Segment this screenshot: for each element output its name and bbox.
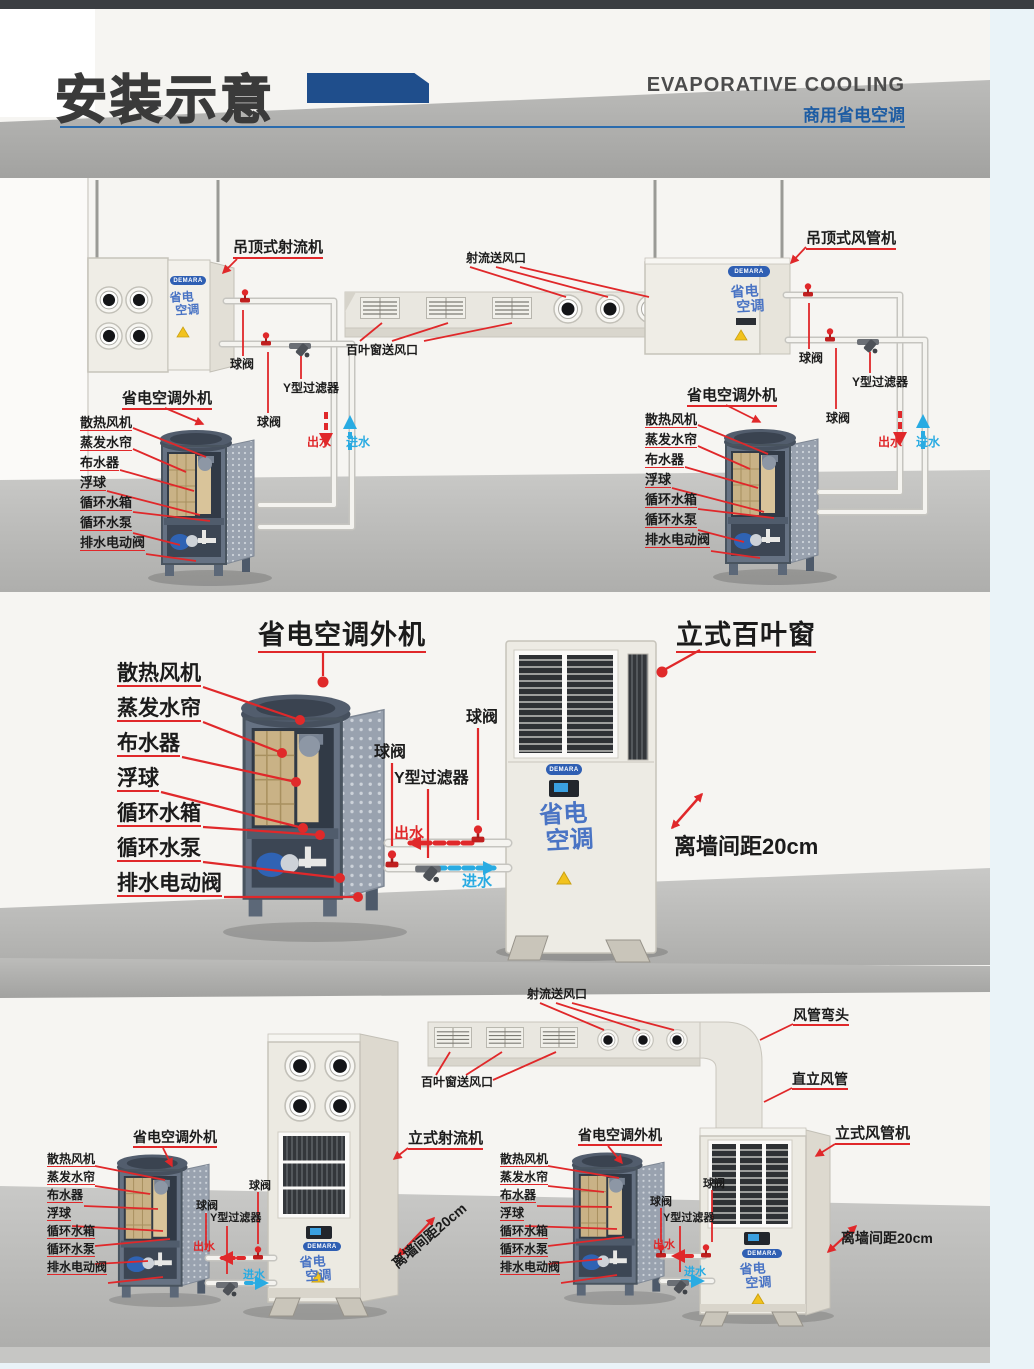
- label-outdoor-unit-s2: 省电空调外机: [258, 622, 426, 653]
- label-y-filter: Y型过滤器: [394, 771, 469, 787]
- label-pump: 循环水泵: [117, 838, 201, 862]
- brand-pill: DEMARA: [170, 276, 206, 285]
- outdoor-unit-4: [572, 1152, 664, 1295]
- label-drain-valve: 排水电动阀: [645, 533, 710, 548]
- ball-valve: [472, 825, 485, 842]
- brand-pill: DEMARA: [546, 764, 582, 775]
- brand-pill: DEMARA: [728, 266, 770, 277]
- floor-scene1: [0, 470, 990, 592]
- part-labels-s1-right: 散热风机 蒸发水帘 布水器 浮球 循环水箱 循环水泵 排水电动阀: [645, 413, 710, 548]
- label-fan: 散热风机: [117, 663, 201, 687]
- left-wall: [0, 178, 88, 480]
- brand-logo: 省电 空调: [299, 1254, 331, 1284]
- label-curtain: 蒸发水帘: [80, 436, 132, 451]
- label-curtain: 蒸发水帘: [117, 698, 201, 722]
- right-margin-strip: [990, 9, 1034, 1363]
- label-tank: 循环水箱: [80, 496, 132, 511]
- label-pump: 循环水泵: [47, 1243, 95, 1257]
- control-panel: [736, 318, 756, 325]
- label-y-filter: Y型过滤器: [210, 1213, 261, 1224]
- label-ball-valve: 球阀: [466, 710, 498, 726]
- label-water-in: 进水: [243, 1270, 265, 1281]
- label-ball-valve: 球阀: [249, 1181, 271, 1192]
- installation-diagram: 安装示意 EVAPORATIVE COOLING 商用省电空调 吊顶式射流机 射…: [0, 0, 1034, 1369]
- ball-valve: [803, 283, 813, 296]
- brand-logo: 省电 空调: [169, 290, 199, 317]
- duct-elbow-riser: [700, 1022, 762, 1128]
- label-curtain: 蒸发水帘: [47, 1171, 95, 1185]
- label-louver-outlet-s3: 百叶窗送风口: [421, 1076, 493, 1088]
- label-jet-outlet-s1: 射流送风口: [466, 252, 526, 264]
- label-tank: 循环水箱: [47, 1225, 95, 1239]
- label-distributor: 布水器: [117, 733, 180, 757]
- label-pump: 循环水泵: [500, 1243, 548, 1257]
- outdoor-unit-1: [160, 430, 254, 576]
- label-fan: 散热风机: [500, 1153, 548, 1167]
- label-water-out: 出水: [653, 1240, 675, 1251]
- label-outdoor-unit-s1-right: 省电空调外机: [687, 388, 777, 407]
- brand-pill: DEMARA: [742, 1249, 782, 1258]
- y-filter: [289, 343, 311, 358]
- y-filter: [415, 865, 441, 882]
- label-pump: 循环水泵: [645, 513, 697, 528]
- label-ball-valve: 球阀: [703, 1179, 725, 1190]
- label-water-out: 出水: [193, 1242, 215, 1253]
- label-ball-valve: 球阀: [230, 358, 254, 370]
- brand-logo: 省电 空调: [539, 801, 595, 856]
- label-float: 浮球: [80, 476, 106, 491]
- label-ball-valve: 球阀: [650, 1197, 672, 1208]
- ball-valve: [825, 328, 835, 341]
- label-distributor: 布水器: [47, 1189, 83, 1203]
- label-drain-valve: 排水电动阀: [500, 1261, 560, 1275]
- brand-logo: 省电 空调: [730, 283, 765, 315]
- ball-valve: [240, 289, 250, 302]
- label-curtain: 蒸发水帘: [645, 433, 697, 448]
- label-curtain: 蒸发水帘: [500, 1171, 548, 1185]
- label-ball-valve: 球阀: [799, 352, 823, 364]
- part-labels-s2: 散热风机 蒸发水帘 布水器 浮球 循环水箱 循环水泵 排水电动阀: [117, 663, 222, 897]
- label-floor-duct-unit: 立式风管机: [835, 1126, 910, 1145]
- part-labels-s3-left: 散热风机 蒸发水帘 布水器 浮球 循环水箱 循环水泵 排水电动阀: [47, 1153, 107, 1275]
- label-outdoor-unit-s1-left: 省电空调外机: [122, 391, 212, 410]
- label-water-out: 出水: [878, 436, 902, 448]
- ceiling-jet-unit: [88, 258, 234, 372]
- outdoor-unit-2: [724, 429, 818, 575]
- y-filter: [857, 339, 879, 354]
- label-tank: 循环水箱: [645, 493, 697, 508]
- title-rule: [60, 126, 905, 128]
- label-fan: 散热风机: [645, 413, 697, 428]
- label-ball-valve: 球阀: [257, 416, 281, 428]
- outdoor-unit-3: [117, 1154, 209, 1297]
- brand-pill: DEMARA: [303, 1242, 341, 1251]
- ball-valve: [386, 850, 399, 867]
- label-tank: 循环水箱: [500, 1225, 548, 1239]
- label-ceiling-duct-unit: 吊顶式风管机: [806, 231, 896, 250]
- label-drain-valve: 排水电动阀: [117, 873, 222, 897]
- label-duct-elbow: 风管弯头: [793, 1008, 849, 1026]
- label-wall-gap-s3-right: 离墙间距20cm: [841, 1231, 933, 1245]
- label-float: 浮球: [47, 1207, 71, 1221]
- floor-duct-unit: [700, 1128, 830, 1326]
- label-floor-jet-unit: 立式射流机: [408, 1131, 483, 1150]
- label-water-in: 进水: [916, 436, 940, 448]
- label-float: 浮球: [645, 473, 671, 488]
- label-water-in: 进水: [462, 874, 492, 889]
- part-labels-s3-right: 散热风机 蒸发水帘 布水器 浮球 循环水箱 循环水泵 排水电动阀: [500, 1153, 560, 1275]
- label-distributor: 布水器: [645, 453, 684, 468]
- page-title: 安装示意: [55, 58, 275, 133]
- label-fan: 散热风机: [47, 1153, 95, 1167]
- hanger-rods: [97, 180, 782, 264]
- outdoor-unit-large: [241, 695, 384, 917]
- label-water-out: 出水: [394, 826, 424, 841]
- part-labels-s1-left: 散热风机 蒸发水帘 布水器 浮球 循环水箱 循环水泵 排水电动阀: [80, 416, 145, 551]
- label-distributor: 布水器: [500, 1189, 536, 1203]
- label-float: 浮球: [500, 1207, 524, 1221]
- label-distributor: 布水器: [80, 456, 119, 471]
- subtitle-en: EVAPORATIVE COOLING: [600, 74, 905, 97]
- label-louver-outlet-s1: 百叶窗送风口: [346, 344, 418, 356]
- label-ball-valve: 球阀: [374, 745, 406, 761]
- label-wall-gap-s2: 离墙间距20cm: [674, 836, 818, 858]
- label-water-out: 出水: [307, 436, 331, 448]
- label-tank: 循环水箱: [117, 803, 201, 827]
- label-outdoor-unit-s3-left: 省电空调外机: [133, 1130, 217, 1148]
- label-y-filter: Y型过滤器: [663, 1213, 714, 1224]
- label-ball-valve: 球阀: [196, 1201, 218, 1212]
- label-outdoor-unit-s3-right: 省电空调外机: [578, 1128, 662, 1146]
- brand-logo: 省电 空调: [739, 1261, 771, 1291]
- label-y-filter: Y型过滤器: [283, 382, 339, 394]
- label-pump: 循环水泵: [80, 516, 132, 531]
- label-water-in: 进水: [684, 1267, 706, 1278]
- label-floor-louver-unit: 立式百叶窗: [676, 622, 816, 653]
- ball-valve: [261, 332, 271, 345]
- label-y-filter: Y型过滤器: [852, 376, 908, 388]
- label-drain-valve: 排水电动阀: [80, 536, 145, 551]
- scene2-pipes: [388, 843, 508, 868]
- label-ball-valve: 球阀: [826, 412, 850, 424]
- label-float: 浮球: [117, 768, 159, 792]
- label-duct-riser: 直立风管: [792, 1072, 848, 1090]
- scene1-duct: [345, 292, 665, 337]
- floor-jet-unit: [268, 1034, 398, 1316]
- subtitle-zh: 商用省电空调: [600, 101, 905, 126]
- label-fan: 散热风机: [80, 416, 132, 431]
- label-drain-valve: 排水电动阀: [47, 1261, 107, 1275]
- label-ceiling-jet-unit: 吊顶式射流机: [233, 240, 323, 259]
- label-water-in: 进水: [346, 436, 370, 448]
- label-jet-outlet-s3: 射流送风口: [527, 988, 587, 1000]
- title-badge: [307, 73, 429, 103]
